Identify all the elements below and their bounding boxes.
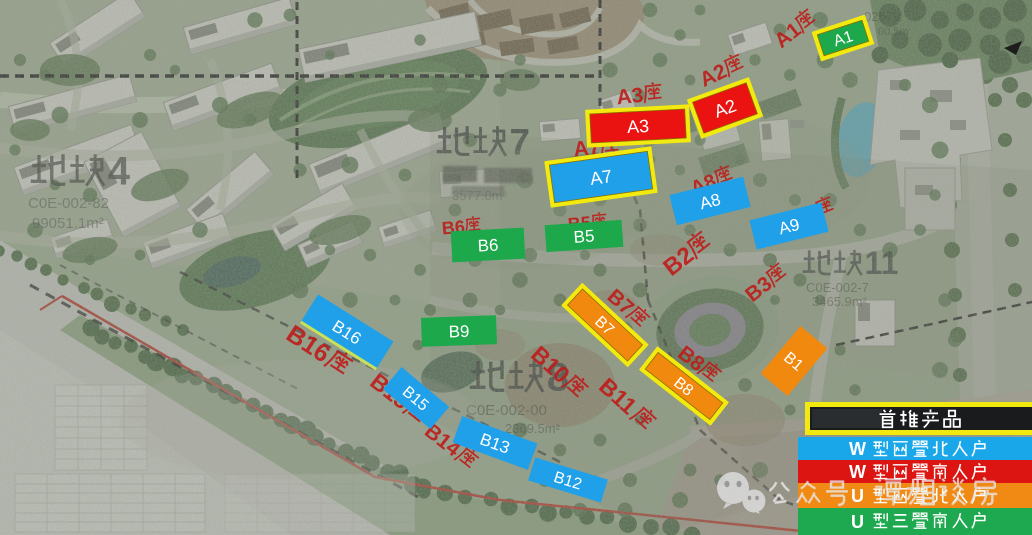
- svg-text:A3: A3: [627, 116, 650, 137]
- svg-text:B5: B5: [573, 226, 595, 246]
- svg-text:U: U: [851, 486, 864, 506]
- svg-text:A7: A7: [589, 166, 614, 189]
- svg-text:W: W: [849, 462, 866, 482]
- svg-text:U: U: [851, 512, 864, 532]
- svg-text:W: W: [849, 439, 866, 459]
- svg-text:B9: B9: [448, 322, 469, 342]
- svg-text:A3: A3: [615, 84, 644, 110]
- svg-text:B6: B6: [477, 236, 499, 256]
